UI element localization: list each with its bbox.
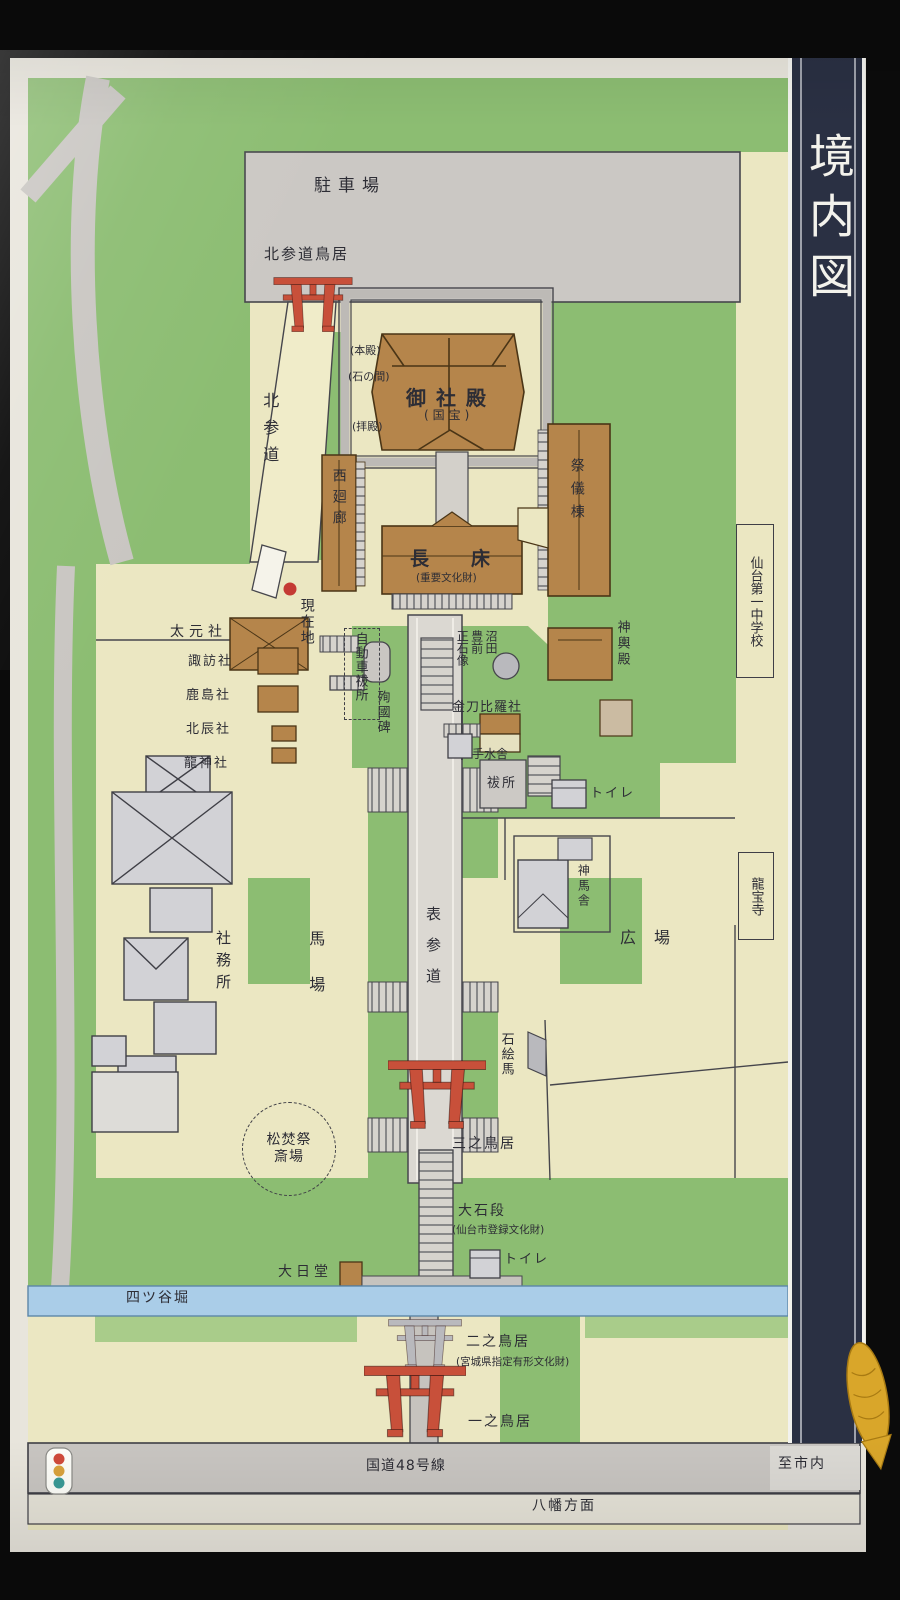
label-parking: 駐車場 [314,176,386,196]
label-toilet-upper: トイレ [590,786,635,802]
label-goshaden: 御社殿 [406,386,496,410]
label-numata-statue: 沼田 豊前 正石像 [446,630,498,706]
toilet-lower-hut [470,1250,500,1278]
label-daigensha: 太元社 [170,624,227,641]
label-nagatoko-note: (重要文化財) [416,572,477,585]
temizusha-hut [448,734,472,758]
label-second-torii: 二之鳥居 [466,1334,530,1351]
label-hachiman-direction: 八幡方面 [532,1498,596,1515]
label-shrine-office: 社務所 [214,930,232,996]
label-suwasha: 諏訪社 [188,654,233,670]
shrine-grounds-map [0,0,900,1600]
label-kotohira: 金刀比羅社 [452,700,522,716]
label-first-torii: 一之鳥居 [468,1414,532,1431]
label-current-location: 現在地 [298,598,315,646]
label-haraisho: 祓所 [487,776,517,792]
label-hiroba: 広場 [620,928,688,947]
label-ryuhoji: 龍宝寺 [747,877,766,916]
label-stone-ema: 石絵馬 [498,1032,514,1077]
label-baba: 馬場 [306,930,325,1022]
current-location-dot [284,583,297,596]
label-north-approach-torii: 北参道鳥居 [264,245,349,263]
label-grand-stairs: 大石段 [458,1203,506,1220]
route-48-road [28,1443,860,1524]
label-third-torii: 三之鳥居 [452,1136,516,1153]
label-temizusha: 手水舎 [472,747,508,761]
traffic-light-icon [46,1448,72,1494]
grand-stone-stairs [419,1150,453,1288]
label-mikoshi-hall: 神輿殿 [614,620,630,668]
label-matsutaki: 松焚祭 斎場 [267,1132,312,1166]
label-omote-sando: 表参道 [424,906,442,999]
map-title: 境内図 [800,132,856,312]
label-horse-stable: 神馬舎 [576,864,590,909]
label-kokuho: (国宝) [424,408,473,422]
label-honden: (本殿) [350,344,381,357]
label-haiden: (拝殿) [352,420,383,433]
label-yotsuyabori: 四ツ谷堀 [126,1290,190,1307]
label-kashimasha: 鹿島社 [186,688,231,704]
label-ceremonial-hall: 祭儀棟 [568,458,585,527]
label-second-torii-note: (宮城県指定有形文化財) [456,1356,569,1369]
label-north-approach: 北参道 [260,392,279,473]
photo-of-map-board: 境内図 駐車場 北参道鳥居 北参道 (本殿) (石の間) (拝殿) 御社殿 (国… [0,0,900,1600]
label-route-48: 国道48号線 [366,1458,446,1475]
label-grand-stairs-note: (仙台市登録文化財) [452,1224,544,1237]
label-ryuhoji-box: 龍宝寺 [738,852,774,940]
label-war-memorial: 殉國碑 [374,690,390,735]
label-dainichido: 大日堂 [278,1264,332,1281]
matsutaki-festival-site: 松焚祭 斎場 [242,1102,336,1196]
label-ishinoma: (石の間) [348,370,390,383]
label-vehicle-purification: 自動車祓所 [352,632,368,702]
label-ryujinsha: 龍神社 [184,756,229,772]
label-toilet-lower: トイレ [504,1252,549,1268]
stone-ema-plaque [528,1032,546,1076]
toilet-upper-hut [552,780,586,808]
label-nagatoko: 長床 [410,548,532,571]
label-west-corridor: 西廻廊 [330,468,347,531]
label-hokushinsha: 北辰社 [186,722,231,738]
label-school-box: 仙台第一中学校 [736,524,774,678]
label-school: 仙台第一中学校 [746,556,765,647]
label-to-city: 至市内 [778,1456,826,1473]
